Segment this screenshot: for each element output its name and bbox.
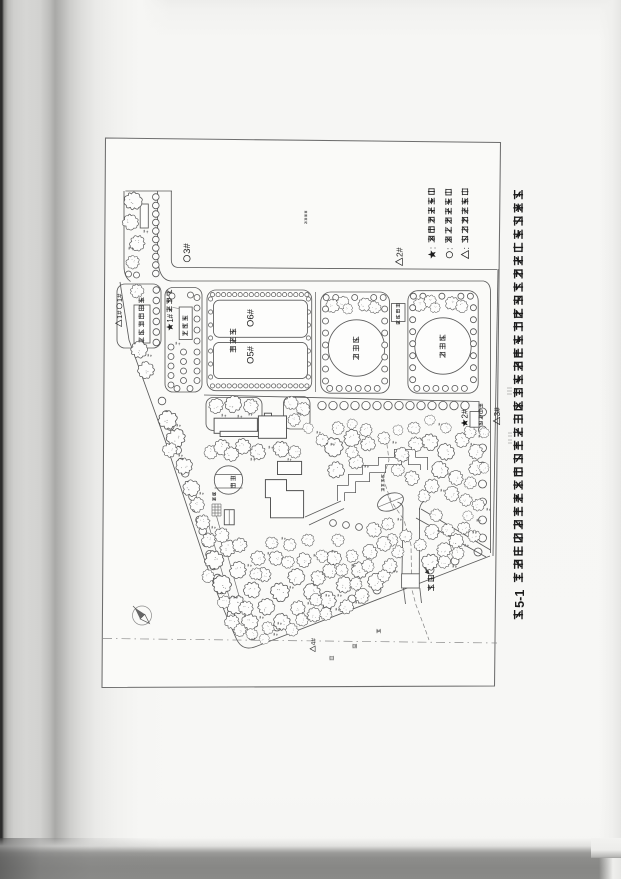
svg-text:4#: 4# (310, 638, 317, 646)
svg-text:2#: 2# (395, 247, 405, 257)
svg-text:3#: 3# (493, 407, 502, 417)
svg-text::: : (461, 247, 471, 250)
svg-text:1#: 1# (115, 310, 124, 319)
svg-text::: : (427, 247, 437, 250)
svg-text:O5#: O5# (246, 345, 257, 364)
svg-text:2#: 2# (461, 409, 470, 418)
svg-text:3#: 3# (182, 243, 192, 254)
svg-text::: : (444, 247, 454, 250)
svg-text:O6#: O6# (246, 308, 257, 327)
svg-text:1#: 1# (166, 313, 175, 322)
svg-text:5-1: 5-1 (513, 590, 527, 608)
